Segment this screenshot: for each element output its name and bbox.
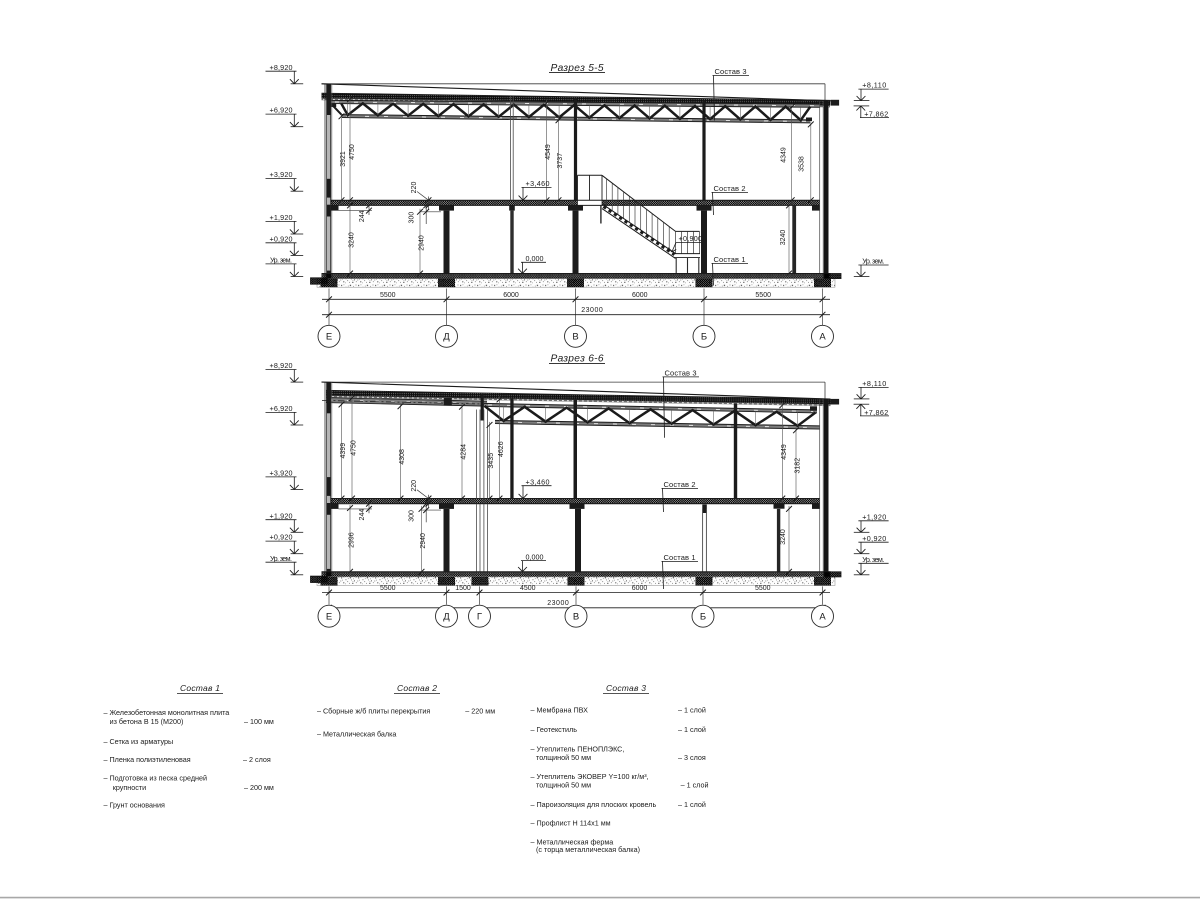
svg-text:300: 300: [409, 212, 416, 224]
svg-text:Е: Е: [326, 612, 332, 623]
svg-text:0,000: 0,000: [526, 254, 544, 263]
svg-text:220: 220: [411, 480, 418, 492]
svg-text:+3,460: +3,460: [526, 179, 550, 188]
svg-text:3737: 3737: [557, 153, 564, 169]
svg-text:+0,900: +0,900: [679, 234, 703, 243]
svg-text:Ур. зем.: Ур. зем.: [862, 257, 884, 266]
svg-text:– 100 мм: – 100 мм: [244, 717, 274, 726]
svg-text:– Металлическая балка: – Металлическая балка: [317, 730, 396, 739]
svg-text:3240: 3240: [780, 529, 787, 545]
svg-text:+8,920: +8,920: [270, 361, 293, 370]
svg-text:4626: 4626: [498, 441, 505, 457]
svg-text:Состав 2: Состав 2: [714, 184, 746, 193]
svg-text:+8,110: +8,110: [862, 379, 886, 388]
svg-text:+3,920: +3,920: [270, 469, 293, 478]
svg-text:3435: 3435: [488, 453, 495, 469]
svg-text:– Сетка из арматуры: – Сетка из арматуры: [104, 737, 174, 746]
svg-text:3240: 3240: [349, 232, 356, 248]
svg-text:+3,460: +3,460: [526, 477, 550, 486]
svg-text:Состав 1: Состав 1: [180, 683, 220, 693]
svg-text:– 1 слой: – 1 слой: [678, 800, 706, 809]
svg-text:– 200 мм: – 200 мм: [244, 783, 274, 792]
svg-text:толщиной 50 мм: толщиной 50 мм: [536, 781, 591, 790]
svg-text:1500: 1500: [455, 585, 471, 592]
svg-text:– Грунт основания: – Грунт основания: [104, 801, 166, 810]
svg-text:Ур. зем.: Ур. зем.: [862, 555, 884, 564]
svg-text:Г: Г: [477, 612, 482, 623]
svg-text:– Геотекстиль: – Геотекстиль: [531, 725, 578, 734]
svg-text:6000: 6000: [632, 585, 648, 592]
svg-text:2940: 2940: [419, 235, 426, 251]
svg-text:Разрез 6-6: Разрез 6-6: [551, 353, 604, 364]
svg-text:А: А: [819, 332, 826, 343]
svg-text:В: В: [573, 612, 579, 623]
svg-text:4349: 4349: [781, 444, 788, 460]
svg-text:– 2 слоя: – 2 слоя: [243, 755, 271, 764]
svg-text:Состав 1: Состав 1: [714, 255, 746, 264]
svg-text:4399: 4399: [340, 443, 347, 459]
svg-text:– Сборные ж/б плиты перекрытия: – Сборные ж/б плиты перекрытия: [317, 707, 430, 716]
svg-text:+0,920: +0,920: [270, 234, 293, 243]
svg-text:+0,920: +0,920: [862, 534, 886, 543]
svg-text:6000: 6000: [632, 292, 648, 299]
svg-text:+3,920: +3,920: [270, 170, 293, 179]
svg-text:5500: 5500: [380, 292, 396, 299]
svg-text:4500: 4500: [520, 585, 536, 592]
svg-text:4750: 4750: [351, 440, 358, 456]
svg-text:+6,920: +6,920: [270, 106, 293, 115]
svg-text:244: 244: [359, 210, 366, 222]
svg-text:Состав 2: Состав 2: [397, 683, 437, 693]
svg-text:крупности: крупности: [113, 783, 146, 792]
svg-text:– Железобетонная монолитная п: – Железобетонная монолитная плита: [104, 708, 230, 717]
svg-text:– 1 слой: – 1 слой: [678, 725, 706, 734]
svg-text:23000: 23000: [581, 307, 603, 314]
svg-text:300: 300: [409, 510, 416, 522]
svg-text:Б: Б: [701, 332, 707, 343]
svg-text:4349: 4349: [780, 147, 787, 163]
svg-text:3240: 3240: [780, 230, 787, 246]
svg-text:+6,920: +6,920: [270, 404, 293, 413]
svg-text:3921: 3921: [340, 151, 347, 167]
svg-text:– Подготовка из песка средней: – Подготовка из песка средней: [104, 774, 208, 783]
svg-text:(с торца металлическая балка): (с торца металлическая балка): [536, 845, 640, 854]
svg-text:3182: 3182: [795, 458, 802, 474]
svg-text:Состав 3: Состав 3: [665, 369, 697, 378]
svg-text:5500: 5500: [755, 292, 771, 299]
svg-text:0,000: 0,000: [526, 552, 544, 561]
svg-text:2940: 2940: [420, 533, 427, 549]
svg-text:5500: 5500: [380, 585, 396, 592]
svg-text:– Пленка полиэтиленовая: – Пленка полиэтиленовая: [104, 755, 191, 764]
svg-text:Д: Д: [443, 612, 450, 623]
svg-text:+1,920: +1,920: [270, 213, 293, 222]
svg-text:2996: 2996: [349, 532, 356, 548]
svg-text:Состав 1: Состав 1: [664, 553, 696, 562]
svg-text:+8,920: +8,920: [270, 63, 293, 72]
svg-text:244: 244: [359, 509, 366, 521]
svg-text:23000: 23000: [547, 600, 569, 607]
svg-text:220: 220: [411, 182, 418, 194]
svg-text:– Мембрана ПВХ: – Мембрана ПВХ: [531, 706, 589, 715]
svg-text:– 3 слоя: – 3 слоя: [678, 753, 706, 762]
svg-text:– Профлист Н 114х1 мм: – Профлист Н 114х1 мм: [531, 819, 611, 828]
svg-text:Состав 2: Состав 2: [664, 480, 696, 489]
svg-text:+1,920: +1,920: [270, 511, 293, 520]
svg-text:+8,110: +8,110: [862, 81, 886, 90]
svg-text:Д: Д: [443, 332, 450, 343]
svg-text:4284: 4284: [461, 444, 468, 460]
svg-text:5500: 5500: [755, 585, 771, 592]
svg-text:Е: Е: [326, 332, 332, 343]
svg-text:Состав 3: Состав 3: [606, 683, 646, 693]
svg-text:В: В: [572, 332, 578, 343]
svg-text:4308: 4308: [399, 449, 406, 465]
svg-text:– 220 мм: – 220 мм: [465, 707, 495, 716]
svg-text:3538: 3538: [799, 156, 806, 172]
svg-text:4750: 4750: [349, 144, 356, 160]
svg-text:+1,920: +1,920: [862, 512, 886, 521]
svg-text:Ур. зем.: Ур. зем.: [270, 554, 292, 563]
svg-text:Б: Б: [700, 612, 706, 623]
svg-text:– 1 слой: – 1 слой: [681, 781, 709, 790]
svg-text:+0,920: +0,920: [270, 533, 293, 542]
svg-text:Ур. зем.: Ур. зем.: [270, 256, 292, 265]
svg-text:6000: 6000: [503, 292, 519, 299]
svg-text:4549: 4549: [545, 144, 552, 160]
svg-text:толщиной 50 мм: толщиной 50 мм: [536, 753, 591, 762]
svg-text:Состав 3: Состав 3: [715, 67, 747, 76]
svg-text:из бетона В 15 (М200): из бетона В 15 (М200): [110, 717, 184, 726]
svg-text:– Пароизоляция для плоских кро: – Пароизоляция для плоских кровель: [531, 800, 657, 809]
svg-text:– 1 слой: – 1 слой: [678, 706, 706, 715]
svg-text:А: А: [819, 612, 826, 623]
